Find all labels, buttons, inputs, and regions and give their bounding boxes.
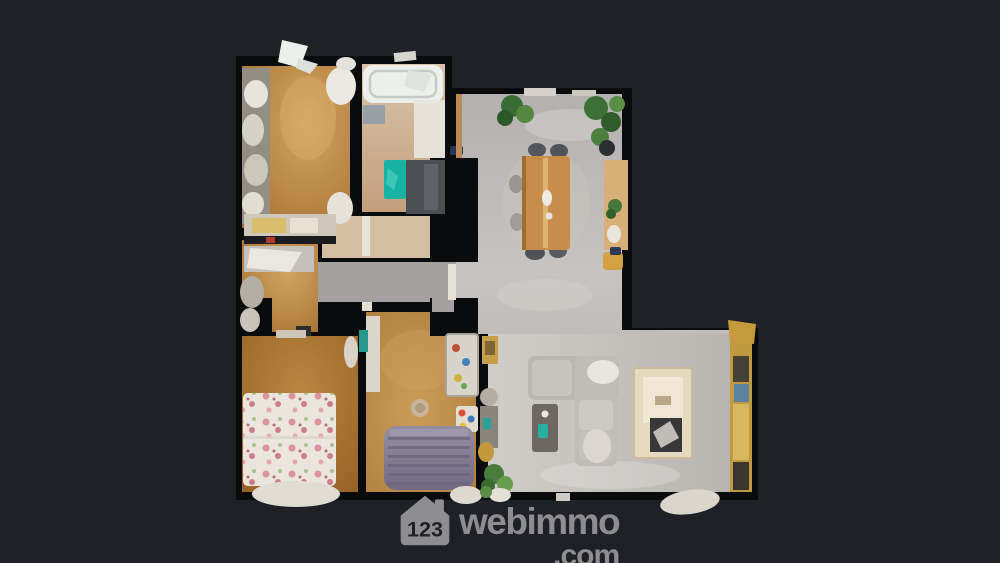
floorplan-viewer: 123 webimmo .com	[0, 0, 1000, 563]
sofa-cushion-2	[579, 400, 613, 430]
books-yellow	[252, 218, 286, 233]
blanket-spill	[252, 481, 340, 507]
shelf-item-2	[242, 114, 264, 146]
curtain-dark-2	[733, 462, 749, 490]
shelf-base	[244, 236, 336, 244]
mattress-stripe-4	[388, 464, 470, 467]
nursery-entry-floor	[432, 298, 454, 312]
office-top-bit	[336, 57, 356, 71]
mattress-stripe-3	[388, 455, 470, 458]
coffee-table-white-item	[542, 411, 549, 418]
hallway-floor	[318, 262, 456, 302]
shelf-item-4	[242, 192, 264, 216]
mattress-stripe-1	[388, 437, 470, 440]
floorplan-svg	[0, 0, 1000, 563]
logo-tld-text: .com	[459, 541, 619, 563]
bed-fold-line	[243, 436, 336, 439]
shelf-item-1	[244, 80, 268, 108]
teal-towel	[359, 330, 368, 352]
mattress-sheen	[389, 429, 469, 436]
mattress-stripe-2	[388, 446, 470, 449]
mattress-stripe-5	[388, 473, 470, 476]
crib-item-3	[454, 374, 462, 382]
bedroom-door-sill	[276, 330, 306, 338]
dressing-clutter-2	[240, 308, 260, 332]
living-gold-item	[478, 442, 494, 462]
coffee-table-teal-item	[538, 424, 548, 438]
shelf-item-3	[244, 154, 268, 186]
basket-inner	[415, 403, 425, 413]
navy-item	[610, 247, 621, 255]
dining-table-edge	[522, 156, 526, 250]
toy-blue	[468, 416, 475, 423]
curtain-gold-light	[733, 404, 749, 460]
shower-glass-streak	[424, 164, 438, 210]
nursery-door-panels	[366, 316, 380, 392]
dining-floor-sheen-2	[497, 279, 593, 311]
bath-vanity	[363, 105, 385, 124]
mattress-stripe-6	[388, 482, 470, 485]
toy-red	[459, 410, 466, 417]
living-cabinet-teal-item	[483, 418, 491, 429]
top-wall-deco-2	[572, 90, 596, 96]
shelf-red-item	[266, 237, 275, 243]
bedroom-white-edge	[344, 336, 358, 368]
sofa-throw-1	[587, 360, 619, 384]
hall-door-frame	[448, 264, 456, 300]
sideboard-plant-b	[606, 209, 616, 219]
logo-house-number: 123	[407, 516, 443, 541]
gold-corner	[728, 320, 756, 344]
hall-door-frame-2	[362, 302, 372, 311]
logo-brand-text: webimmo	[459, 503, 619, 540]
curtain-blue-item	[734, 384, 749, 402]
dining-plant-2d	[609, 96, 625, 112]
logo-words: webimmo .com	[459, 494, 619, 563]
dining-plant-1b	[516, 105, 534, 123]
dining-chair-6	[510, 213, 524, 231]
bath-partition	[414, 100, 445, 158]
floorplan-shapes	[236, 40, 758, 518]
wood-strip-dining	[456, 94, 462, 158]
office-armchair	[326, 67, 356, 105]
top-wall-deco-1	[524, 88, 556, 96]
crib-item-2	[462, 358, 470, 366]
dining-chair-2	[550, 144, 568, 158]
crib-item-1	[452, 344, 460, 352]
dining-plant-pot	[599, 140, 615, 156]
logo-123webimmo: 123 webimmo .com	[398, 494, 619, 563]
table-deco-1	[542, 190, 552, 206]
sideboard-vase	[607, 225, 621, 243]
crib-item-4	[461, 383, 467, 389]
living-frames-inner	[485, 341, 495, 355]
dining-plant-1c	[497, 110, 513, 126]
living-round-table	[480, 388, 498, 406]
kids-cot-label	[655, 396, 671, 405]
dressing-clutter-1	[240, 276, 264, 308]
table-deco-2	[546, 213, 553, 220]
curtain-dark-1	[733, 356, 749, 382]
dining-chair-5	[509, 175, 523, 193]
dining-chair-1	[528, 143, 546, 157]
logo-house-icon: 123	[398, 494, 452, 548]
books-white	[290, 218, 318, 233]
sofa-throw-2	[583, 429, 611, 463]
sofa-cushion-1	[532, 360, 572, 396]
bath-door-frame	[362, 216, 370, 256]
bed-floral-cover	[243, 393, 336, 486]
